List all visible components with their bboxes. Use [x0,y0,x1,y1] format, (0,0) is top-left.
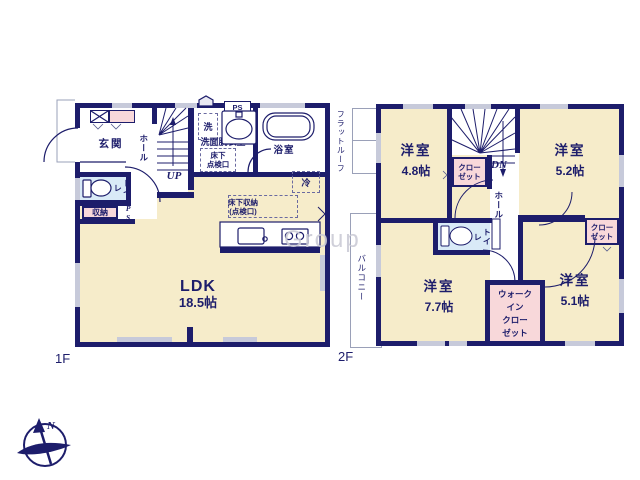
floor-plan-canvas: フラットルーフ バルコニー 収納 洗 床 [0,0,640,480]
flat-roof-outline [352,108,378,174]
window-bottom-room77-b [449,341,467,346]
window-bottom-room77-a [417,341,445,346]
floor1-fixtures [80,108,325,342]
window-right-room52 [619,155,624,187]
compass-north-text: N [47,420,55,433]
window-bottom-room51 [565,341,595,346]
watermark-text: Group [284,226,361,254]
compass-icon [14,412,78,476]
floor1-label: 1F [55,351,70,366]
balcony-label: バルコニー [356,252,366,304]
window-right-room51 [619,279,624,313]
floor-2-plan: クロー ゼット クロー ゼット 洋室 4.8帖 洋室 5.2帖 洋室 7.7帖 [376,104,624,346]
flat-roof-label: フラットルーフ [336,106,345,176]
flat-roof-divider [352,140,376,141]
floor2-label: 2F [338,349,353,364]
floor2-fixtures [381,109,619,341]
floor-1-plan: 収納 洗 床下 点検口 冷 床下収納 (点検口) PS [75,103,330,347]
